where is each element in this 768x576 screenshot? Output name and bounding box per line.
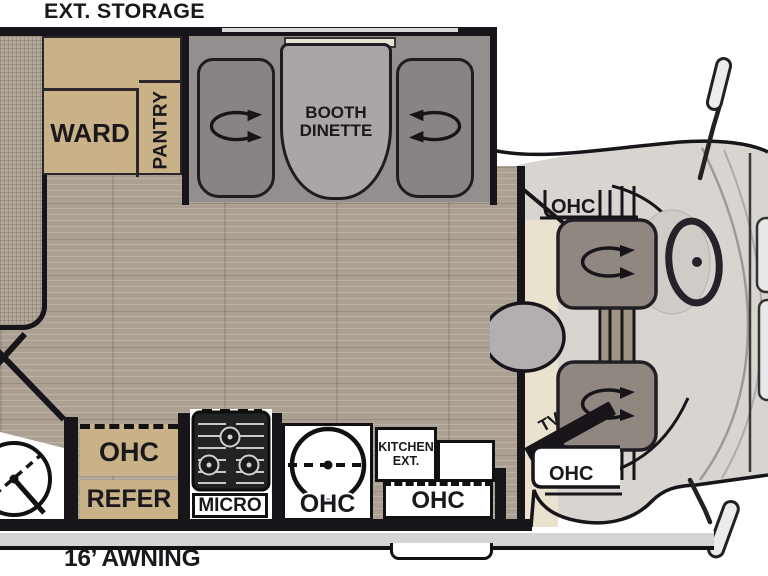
booth-table: BOOTH DINETTE <box>280 43 392 200</box>
bottom-wall <box>0 519 532 531</box>
refrigerator: REFER <box>80 480 178 519</box>
kitchen-ohc-cabinet: OHC <box>80 424 178 476</box>
cab-ohc-top-label: OHC <box>551 196 595 218</box>
kitchen-divider <box>178 413 190 521</box>
sink-ohc-label: OHC <box>285 491 370 517</box>
cab-section: OHC TV OHC <box>490 40 768 576</box>
cabinet-block: WARD PANTRY <box>42 36 182 175</box>
cooktop-micro-unit: MICRO <box>190 409 272 521</box>
kitchen-ext-counter: KITCHEN EXT. <box>375 427 437 482</box>
swivel-arrow-icon <box>207 110 265 146</box>
awning-label: 16’ AWNING <box>64 546 200 572</box>
cooktop-icon <box>190 409 272 493</box>
sink-counter: OHC <box>282 423 373 521</box>
booth-seat-left <box>197 58 275 198</box>
entry-ohc-label: OHC <box>411 488 464 513</box>
ward-label: WARD <box>50 120 129 147</box>
ward-cabinet: WARD <box>44 88 139 177</box>
ext-storage-label: EXT. STORAGE <box>44 0 205 23</box>
slideout-window <box>222 28 458 32</box>
rv-floorplan: EXT. STORAGE WARD PANTRY BOOTH DINETTE <box>0 0 768 576</box>
kitchen-ext-label: KITCHEN EXT. <box>378 441 434 467</box>
booth-dinette-area: BOOTH DINETTE <box>189 36 490 202</box>
driver-seat <box>558 220 656 308</box>
steering-hub <box>692 257 702 267</box>
micro-label-box: MICRO <box>192 493 268 518</box>
entry-ohc-cabinet: OHC <box>383 482 493 519</box>
wall-post-left <box>182 27 189 205</box>
pedestal-table-icon <box>0 418 64 520</box>
headlight <box>757 218 768 292</box>
cab-ohc-door-label: OHC <box>549 463 593 485</box>
kitchen-divider <box>272 413 282 521</box>
kitchen-ohc-label: OHC <box>99 438 159 466</box>
booth-seat-right <box>396 58 474 198</box>
pantry-cabinet: PANTRY <box>139 80 184 177</box>
booth-dinette-label: BOOTH DINETTE <box>293 104 379 140</box>
bed-edge <box>0 27 47 330</box>
headlight <box>759 300 768 400</box>
refer-label: REFER <box>87 486 172 512</box>
entry-step <box>390 543 493 560</box>
cab-table <box>490 303 564 371</box>
kitchen-divider <box>64 417 78 521</box>
counter-box <box>437 440 495 482</box>
swivel-arrow-icon <box>406 110 464 146</box>
pantry-label: PANTRY <box>152 81 172 178</box>
micro-label: MICRO <box>198 496 261 516</box>
